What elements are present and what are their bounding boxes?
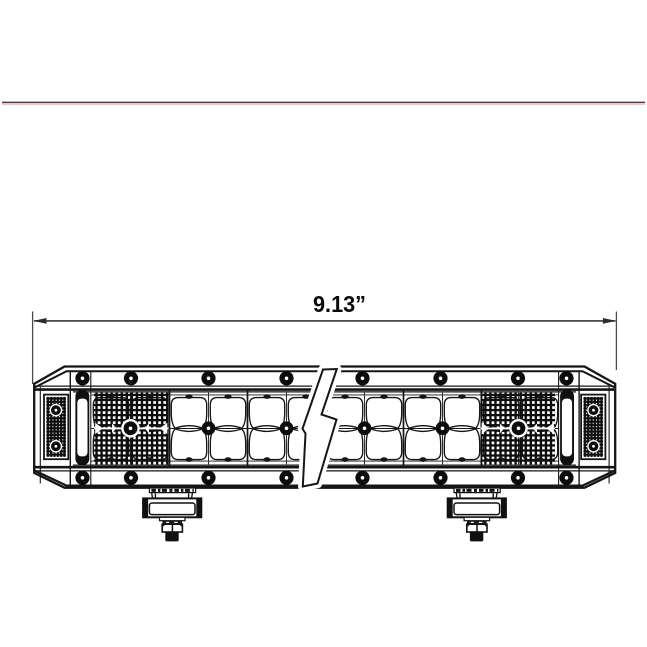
svg-text:9.13”: 9.13” bbox=[313, 291, 366, 317]
